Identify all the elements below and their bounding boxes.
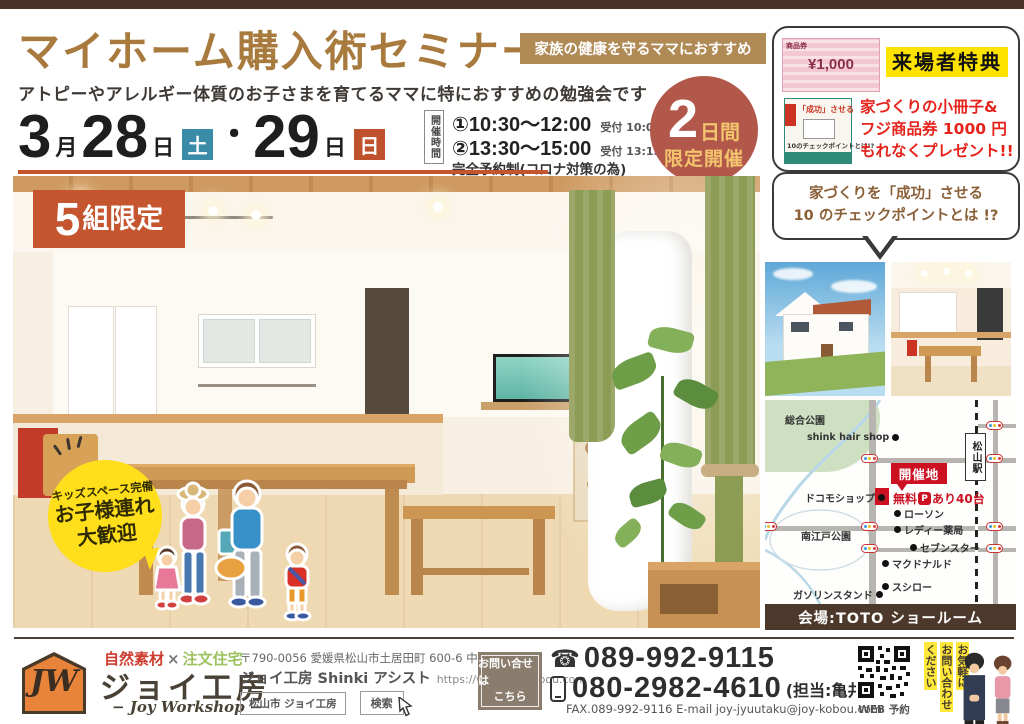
poi-docomo: ドコモショップ [805,490,888,505]
benefit-title: 来場者特典 [886,47,1008,77]
month-number: 3 [18,106,51,168]
poi-sushiro: スシロー [879,579,932,594]
traffic-light-icon [986,454,1003,463]
kitchen-table [919,346,981,356]
gift-voucher-image: 商品券 ¥1,000 [782,38,880,92]
spotlight-icon [943,268,950,275]
poi-dot [882,560,889,567]
search-input: 松山市 ジョイ工房 [240,692,346,715]
parking-icon: P [918,492,931,505]
poi-dot [892,434,899,441]
contact-line1: お問い合せは [478,656,542,689]
day1-weekday-badge: 土 [182,129,213,160]
venue-label-box: 開催地 [891,463,947,484]
traffic-light-icon [986,522,1003,531]
kitchen-table-leg [971,356,977,382]
vertical-note-line2: お問い合わせ [940,642,953,712]
session2-row: ②13:30〜15:00 受付 13:15〜 [452,132,672,161]
house-window [791,322,809,332]
kitchen-floor [891,366,1011,396]
company-sub-name: ジョイ工房 Shinki アシスト [240,667,431,688]
poi-pharmacy: レディー薬局 [891,522,963,537]
mobile-phone-icon [550,676,566,702]
phone-number-2: 080-2982-4610 [572,672,782,705]
table-leg [385,489,399,595]
kitchen-red-chair [907,340,917,356]
spotlight-icon [208,206,218,216]
emphasis-marks-icon [56,436,86,458]
benefit-description: 家づくりの小冊子& フジ商品券 1000 円 もれなくプレゼント!! [860,96,1014,162]
poi-sevenstar: セブンスター [907,540,980,555]
vertical-note-line3: ください [924,642,937,690]
footer-divider [14,637,1014,639]
seminar-flyer: マイホーム購入術セミナー 家族の健康を守るママにおすすめ アトピーやアレルギー体… [0,0,1024,724]
visitor-benefit-panel: 商品券 ¥1,000 来場者特典 「成功」させる 10のチェックポイントとは!?… [772,26,1020,172]
page-title: マイホーム購入術セミナー [18,18,545,79]
poi-dot [894,526,901,533]
booklet-title: 「成功」させる [798,104,854,115]
checkpoint-bubble-tail-inner [866,234,894,253]
day2-number: 29 [253,106,320,168]
access-map: 松山駅 総合公園 shink hair shop 開催地 無料Pあり40台 ドコ… [765,400,1016,604]
traffic-light-icon [861,454,878,463]
badge-unit: 日間 [700,122,740,142]
poi-lawson: ローソン [891,506,944,521]
five-groups-limit-badge: 5 組限定 [33,190,185,248]
traffic-light-icon [861,544,878,553]
two-days-badge: 2 日間 限定開催 [650,76,758,184]
green-curtain-left [569,190,615,442]
event-dates: 3 月 28 日 土 ・ 29 日 日 [18,98,387,168]
kitchen-cabinet [899,292,957,334]
wall-cabinet [198,314,316,368]
poi-dot [876,591,883,598]
plant-stem [661,376,664,566]
road [993,400,998,604]
traffic-light-icon [765,522,777,531]
telephone-icon: ☎ [550,645,580,673]
cursor-icon [398,697,416,717]
spotlight-icon [921,270,928,277]
contact-line2: こちら [494,689,527,706]
cloud [831,280,877,293]
poi-dot [878,494,885,501]
cabinet [68,306,114,416]
spotlight-icon [251,210,261,220]
badge-text: 限定開催 [664,150,744,169]
voucher-amount: ¥1,000 [783,56,879,73]
poi-mcdonalds: マクドナルド [879,556,952,571]
kids-bubble-line3: 大歓迎 [76,520,138,551]
mobile-row: 080-2982-4610 (担当:亀井) [550,672,871,705]
date-separator: ・ [217,107,251,156]
station-box: 松山駅 [965,433,986,481]
session2-time: ②13:30〜15:00 [452,138,591,160]
badge-number: 2 [668,92,698,146]
top-accent-bar [0,0,1024,9]
green-curtain-right [705,176,755,466]
towel-bar [198,384,316,387]
company-logo-initials: JW [24,664,84,699]
contact-cta-box: お問い合せは こちら [478,652,542,710]
checkpoint-line2: 10 のチェックポイントとは !? [794,206,999,228]
limit-number: 5 [55,196,81,242]
cabinet [115,306,157,416]
target-audience-badge: 家族の健康を守るママにおすすめ [520,33,766,64]
spotlight-icon [965,270,972,277]
kitchen-interior-photo [891,262,1011,396]
spotlight-icon [433,202,443,212]
house-window [839,322,853,331]
poi-dot [894,510,901,517]
poi-park-south: 南江戸公園 [801,528,851,543]
checkpoint-line1: 家づくりを「成功」させる [809,184,983,206]
phone-number-1: 089-992-9115 [584,642,775,675]
booklet-band [785,152,851,163]
poi-dot [910,544,917,551]
search-mock: 松山市 ジョイ工房 検索 [240,689,416,717]
bench-leg [411,519,423,595]
day1-number: 28 [81,106,148,168]
qr-code[interactable] [856,644,912,700]
limit-text: 組限定 [82,206,163,233]
tv-stand [648,562,760,628]
qr-label: WEB 予約 [856,702,912,717]
poi-gas-station: ガソリンスタンド [793,587,886,602]
benefit-title-wrap: 来場者特典 [886,46,1008,75]
booklet-image: 「成功」させる 10のチェックポイントとは!? [784,98,852,164]
divider-line [18,170,548,174]
fax-email-line: FAX.089-992-9116 E-mail joy-jyuutaku@joy… [566,702,882,716]
time-header-box: 開催時間 [424,110,444,164]
venue-bar: 会場:TOTO ショールーム [765,604,1016,630]
benefit-desc-line2: フジ商品券 1000 円 [860,118,1014,140]
shelf-unit [365,288,409,416]
day1-unit: 日 [152,130,174,162]
benefit-desc-line1: 家づくりの小冊子& [860,96,1014,118]
bench-stretcher [417,568,529,575]
kitchen-counter-top [13,414,443,423]
kitchen-counter [891,332,1011,338]
parking-info: 無料Pあり40台 [893,490,985,507]
traffic-light-icon [986,544,1003,553]
booklet-tag [785,104,796,126]
poi-park-top: 総合公園 [785,412,825,427]
reservation-note: 完全予約制(コロナ対策の為) [452,158,626,178]
checkpoint-bubble: 家づくりを「成功」させる 10 のチェックポイントとは !? [772,172,1020,240]
traffic-light-icon [986,421,1003,430]
phone-row: ☎ 089-992-9115 [550,642,775,675]
month-unit: 月 [55,130,77,162]
house-exterior-photo [765,262,885,396]
day2-unit: 日 [324,130,346,162]
poi-hair-shop: shink hair shop [807,432,902,443]
bowing-staff-illustration [958,640,1018,724]
voucher-label: 商品券 [786,41,807,51]
day2-weekday-badge: 日 [354,129,385,160]
family-illustration [155,472,347,628]
kitchen-ceiling [891,262,1011,288]
traffic-light-icon [861,522,878,531]
kitchen-table-leg [925,356,931,382]
benefit-desc-line3: もれなくプレゼント!! [860,140,1014,162]
cloud [773,268,813,280]
booklet-house-icon [803,119,835,139]
